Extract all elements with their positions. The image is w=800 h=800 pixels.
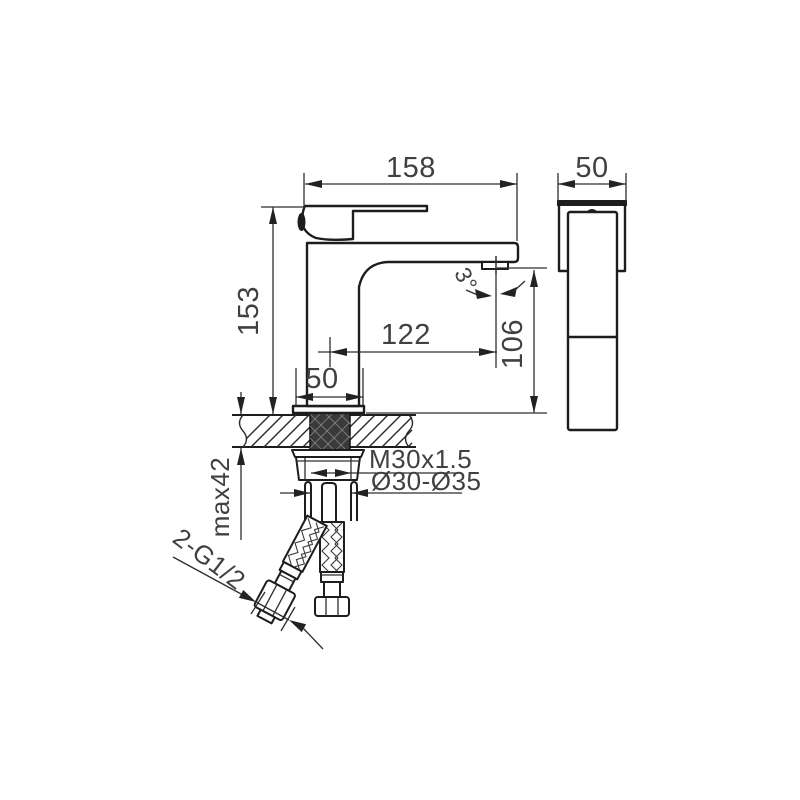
side-body (568, 212, 617, 430)
hose-neck (324, 582, 340, 597)
shank-tube (305, 482, 357, 521)
dim-total-length-label: 158 (386, 152, 436, 184)
label-hole-diameter-text: Ø30-Ø35 (371, 466, 481, 496)
hose-hex-nut (315, 597, 349, 616)
break-line-left (240, 415, 247, 447)
side-lever-tip (586, 209, 598, 212)
dim-max-counter-thickness-label: max42 (205, 457, 235, 538)
dim-spout-reach-label: 122 (381, 319, 431, 351)
handle (298, 206, 428, 240)
faucet-drawing: 158 50 153 122 106 (0, 0, 800, 800)
threaded-shank (310, 412, 350, 450)
side-view (557, 200, 627, 430)
hatch-right (350, 415, 412, 447)
dim-spout-height-label: 106 (497, 319, 529, 369)
dim-side-width-label: 50 (575, 152, 608, 184)
dim-total-height: 153 (233, 207, 305, 414)
mounting-washer (292, 450, 364, 457)
dim-side-width: 50 (558, 152, 626, 202)
technical-drawing-canvas: 158 50 153 122 106 (0, 0, 800, 800)
hose-sleeve (321, 572, 343, 582)
dim-total-height-label: 153 (233, 286, 265, 336)
hatch-left (246, 415, 310, 447)
dim-base-width-label: 50 (305, 363, 338, 395)
supply-hoses (250, 513, 349, 627)
side-handle-top (557, 200, 627, 206)
handle-pivot (298, 213, 306, 231)
mounting-hardware (292, 450, 364, 521)
